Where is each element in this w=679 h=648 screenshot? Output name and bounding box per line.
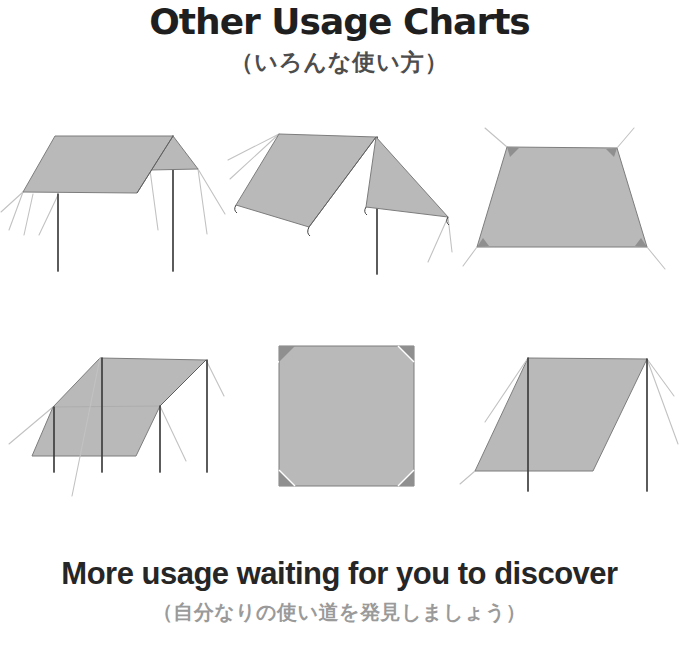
square-tarp-top-view-diagram bbox=[227, 338, 453, 498]
guy-line bbox=[647, 247, 665, 269]
guy-line bbox=[150, 170, 158, 230]
diagram-cell-1 bbox=[0, 122, 227, 292]
diagram-grid bbox=[0, 122, 679, 498]
tarp-right-panel bbox=[366, 137, 448, 217]
slanted-windbreak-tarp-diagram bbox=[453, 338, 679, 498]
guy-line bbox=[463, 247, 477, 266]
footer: More usage waiting for you to discover （… bbox=[0, 556, 679, 626]
tie-out-loop bbox=[235, 205, 237, 213]
ground-sheet-panel bbox=[477, 147, 647, 247]
diagram-cell-3 bbox=[453, 122, 679, 292]
guy-line bbox=[448, 217, 452, 252]
ground-sheet-trapezoid-tarp-diagram bbox=[453, 122, 679, 292]
corner-notch bbox=[227, 346, 279, 362]
guy-line bbox=[617, 128, 634, 148]
footer-subheading-japanese: （自分なりの使い道を発見しましょう） bbox=[0, 599, 679, 626]
tie-out-loop bbox=[365, 207, 367, 215]
diagram-cell-4 bbox=[0, 338, 227, 498]
guy-line bbox=[24, 194, 33, 235]
diagram-cell-6 bbox=[453, 338, 679, 498]
guy-line bbox=[198, 169, 225, 214]
diagram-cell-5 bbox=[227, 338, 453, 498]
awning-lean-to-four-pole-tarp-diagram bbox=[0, 338, 227, 498]
guy-line bbox=[460, 471, 475, 484]
guy-line bbox=[39, 195, 58, 235]
guy-line bbox=[206, 360, 224, 396]
usage-charts-infographic: Other Usage Charts （いろんな使い方） bbox=[0, 0, 679, 648]
tarp-canopy-panel bbox=[23, 136, 173, 193]
guy-line bbox=[647, 359, 678, 444]
page-subtitle-japanese: （いろんな使い方） bbox=[0, 47, 679, 78]
a-frame-tarp-shelter-diagram bbox=[227, 122, 453, 292]
windbreak-panel bbox=[475, 358, 647, 471]
guy-line bbox=[160, 406, 186, 461]
guy-line bbox=[428, 217, 448, 262]
tarp-left-panel bbox=[236, 134, 376, 227]
guy-line bbox=[647, 359, 674, 396]
header: Other Usage Charts （いろんな使い方） bbox=[0, 0, 679, 78]
guy-line bbox=[485, 128, 507, 147]
diagram-cell-2 bbox=[227, 122, 453, 292]
tie-out-loop bbox=[308, 227, 310, 236]
page-title: Other Usage Charts bbox=[0, 1, 679, 42]
footer-heading: More usage waiting for you to discover bbox=[0, 556, 679, 592]
square-tarp-panel bbox=[279, 346, 414, 486]
guy-line bbox=[198, 169, 207, 234]
flat-canopy-tarp-with-two-poles-diagram bbox=[0, 122, 227, 292]
